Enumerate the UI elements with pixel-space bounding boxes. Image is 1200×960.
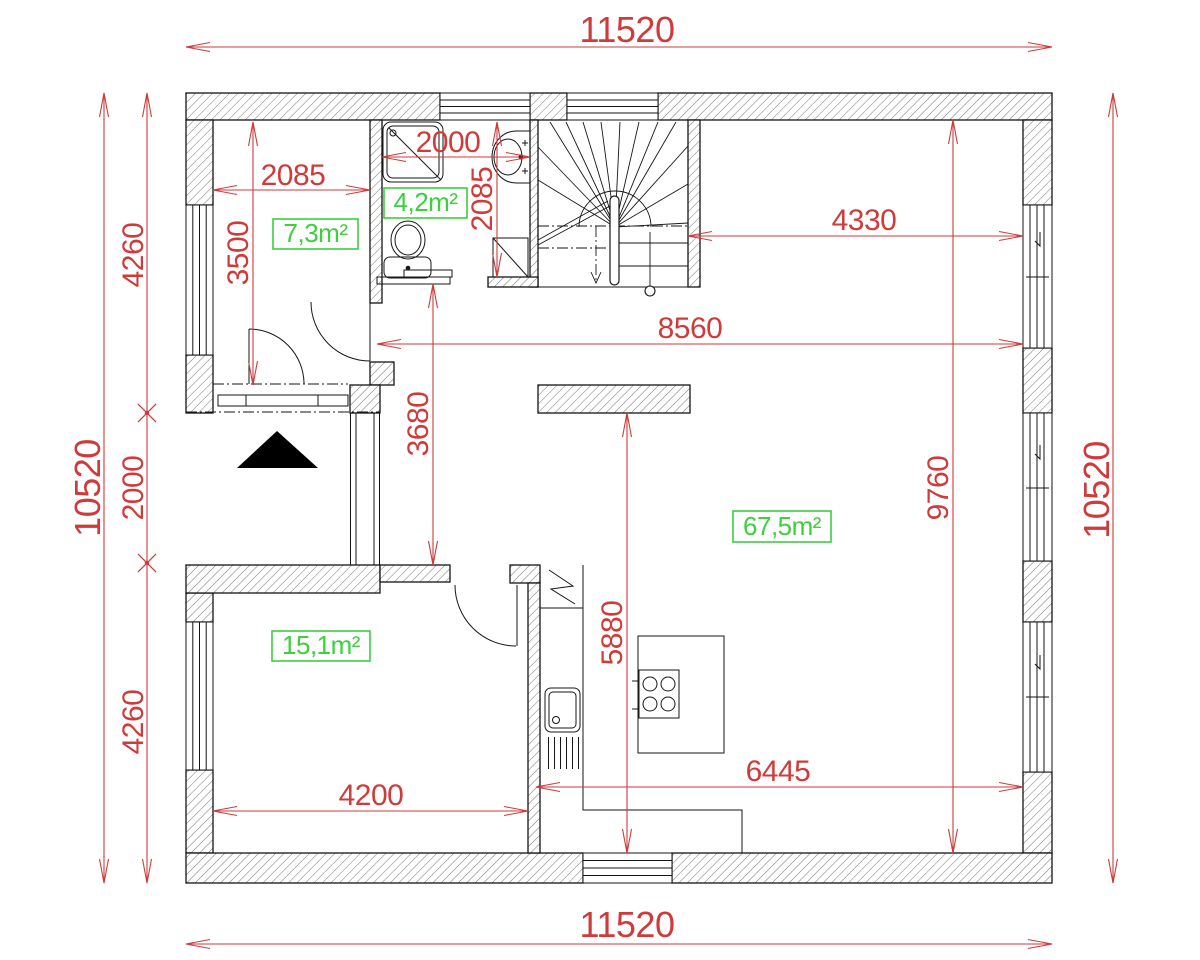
stair-handrail bbox=[610, 196, 619, 285]
dimension-label: 4260 bbox=[117, 690, 150, 755]
dimension-label: 3680 bbox=[402, 392, 435, 457]
dimension-label: 11520 bbox=[580, 9, 675, 50]
dimension-tick-dot bbox=[145, 411, 149, 415]
wall-bath-stair bbox=[530, 120, 538, 287]
wall-bottom-left bbox=[186, 853, 583, 883]
wall-kitchen-stub bbox=[510, 565, 540, 583]
window-left-room2 bbox=[186, 622, 213, 770]
dimension-label: 4330 bbox=[832, 204, 897, 237]
dimension-label: 2000 bbox=[416, 126, 481, 159]
wall-right-lower-corner bbox=[1023, 772, 1052, 853]
wall-room1-bath bbox=[370, 120, 382, 303]
dimension-label: 5880 bbox=[596, 601, 629, 666]
dimension-label: 6445 bbox=[746, 755, 811, 788]
dimension-hall-height: 3680 bbox=[402, 284, 438, 565]
stair-newel-post bbox=[645, 286, 655, 296]
wall-stair-south-bar bbox=[538, 385, 690, 413]
wall-bath-south-stub bbox=[488, 277, 538, 287]
wall-right-pier-2 bbox=[1023, 561, 1052, 622]
wall-left-lower-pier bbox=[186, 770, 213, 853]
window-top-stair bbox=[567, 93, 658, 120]
wall-left-corner bbox=[186, 120, 213, 205]
window-left-room1 bbox=[186, 205, 213, 355]
dimension-label: 9760 bbox=[922, 456, 955, 521]
dimension-living-width: 8560 bbox=[377, 312, 1023, 349]
bath-shelf bbox=[377, 270, 452, 284]
wall-right-pier-1 bbox=[1023, 348, 1052, 413]
stair-railing bbox=[538, 201, 610, 245]
wall-stair-right bbox=[688, 120, 700, 287]
entrance-arrow-icon bbox=[237, 431, 318, 468]
wall-vestibule-pier bbox=[350, 385, 380, 413]
dimension-label: 2000 bbox=[117, 456, 150, 521]
dimension-label: 4260 bbox=[117, 223, 150, 288]
dimension-left-height: 10520 bbox=[67, 93, 109, 883]
kitchen-island bbox=[632, 636, 724, 753]
dimension-right-height: 10520 bbox=[1076, 93, 1118, 883]
wall-bottom-right bbox=[672, 853, 1052, 883]
area-label-text: 15,1m² bbox=[282, 630, 361, 660]
dimension-room2-width: 4200 bbox=[213, 779, 528, 816]
wall-room2-north bbox=[186, 565, 380, 593]
dimension-label: 10520 bbox=[1076, 441, 1117, 539]
door-room2 bbox=[455, 585, 517, 646]
wall-right-corner bbox=[1023, 120, 1052, 205]
floor-plan-drawing: 1152011520105201052042602000426020853500… bbox=[0, 0, 1200, 960]
dimension-tick-dot bbox=[145, 561, 149, 565]
dimension-label: 4200 bbox=[339, 779, 404, 812]
kitchen-fixtures bbox=[540, 565, 742, 853]
area-label-text: 7,3m² bbox=[284, 218, 349, 248]
dimension-label: 11520 bbox=[580, 904, 675, 945]
toilet-icon bbox=[384, 221, 431, 278]
wall-room1-bath-stub bbox=[370, 362, 394, 385]
dimension-label: 8560 bbox=[658, 312, 723, 345]
entrance-door-band bbox=[218, 395, 348, 406]
living-area: 67,5m² bbox=[733, 511, 831, 542]
wall-left-lower-corner bbox=[186, 593, 213, 622]
dimension-landing-width: 4330 bbox=[688, 204, 1023, 241]
dimension-dining-width: 6445 bbox=[536, 755, 1023, 792]
dimension-top-width: 11520 bbox=[186, 9, 1052, 52]
dimension-living-height: 9760 bbox=[922, 120, 958, 853]
bathroom-area: 4,2m² bbox=[384, 187, 467, 218]
dimension-label: 2085 bbox=[261, 159, 326, 192]
cooktop-icon bbox=[632, 670, 679, 718]
staircase bbox=[538, 122, 688, 296]
wall-top-right bbox=[658, 93, 1052, 120]
wall-top-left bbox=[186, 93, 440, 120]
dimension-label: 10520 bbox=[67, 439, 108, 537]
dimension-annotations: 1152011520105201052042602000426020853500… bbox=[67, 9, 1118, 949]
dimension-left-upper-4260: 4260 bbox=[117, 93, 156, 422]
wall-left-pier bbox=[186, 355, 213, 413]
wall-kitchen bbox=[528, 583, 540, 853]
area-label-text: 67,5m² bbox=[743, 511, 822, 541]
door-room1 bbox=[249, 329, 304, 384]
window-right-3 bbox=[1023, 622, 1052, 772]
dimension-label: 2085 bbox=[466, 167, 499, 232]
dimension-left-lower-4260: 4260 bbox=[117, 554, 156, 883]
dimension-label: 3500 bbox=[222, 221, 255, 286]
wall-top-pier bbox=[530, 93, 567, 120]
fridge-break-icon bbox=[549, 570, 575, 604]
area-label-text: 4,2m² bbox=[394, 187, 459, 217]
window-bottom-living bbox=[583, 853, 672, 883]
window-porch-strip bbox=[351, 413, 380, 565]
room2-area: 15,1m² bbox=[272, 630, 370, 661]
dimension-left-2000: 2000 bbox=[117, 404, 156, 572]
window-right-1 bbox=[1023, 205, 1052, 348]
dimension-room1-width: 2085 bbox=[213, 159, 370, 195]
window-top-bath bbox=[440, 93, 530, 120]
dimension-bottom-width: 11520 bbox=[186, 904, 1052, 949]
floor-plan-canvas: 1152011520105201052042602000426020853500… bbox=[0, 0, 1200, 960]
door-hall bbox=[311, 302, 370, 361]
room1-area: 7,3m² bbox=[273, 218, 358, 249]
dimension-room1-height: 3500 bbox=[222, 122, 258, 385]
doors bbox=[249, 302, 517, 646]
wall-room2-north-thin bbox=[380, 565, 450, 582]
kitchen-sink-icon bbox=[545, 688, 580, 769]
window-right-2 bbox=[1023, 413, 1052, 561]
